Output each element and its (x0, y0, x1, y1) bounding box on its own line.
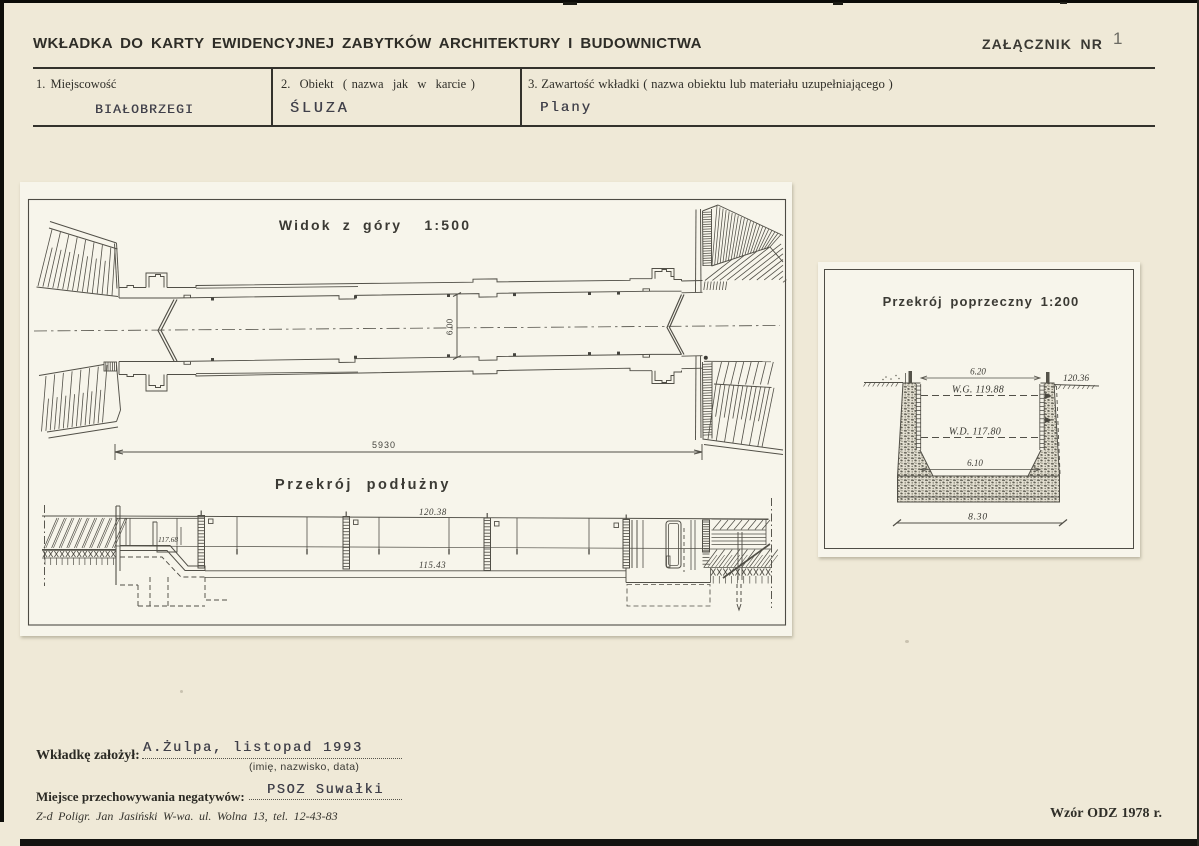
svg-text:115.43: 115.43 (419, 560, 446, 570)
svg-text:Widok z góry 1:500: Widok z góry 1:500 (279, 217, 471, 233)
svg-text:6.00: 6.00 (445, 318, 455, 335)
svg-text:6.10: 6.10 (967, 458, 983, 468)
svg-text:Przekrój podłużny: Przekrój podłużny (275, 477, 451, 493)
svg-text:8.30: 8.30 (968, 513, 988, 523)
svg-text:Przekrój poprzeczny 1:200: Przekrój poprzeczny 1:200 (883, 294, 1080, 309)
svg-text:120.38: 120.38 (419, 507, 447, 517)
svg-text:117.68: 117.68 (158, 535, 178, 544)
svg-text:W.G. 119.88: W.G. 119.88 (952, 385, 1004, 396)
svg-text:120.36: 120.36 (1063, 374, 1089, 384)
svg-text:W.D. 117.80: W.D. 117.80 (949, 427, 1001, 438)
svg-text:6.20: 6.20 (970, 367, 986, 377)
svg-text:5930: 5930 (372, 440, 396, 450)
